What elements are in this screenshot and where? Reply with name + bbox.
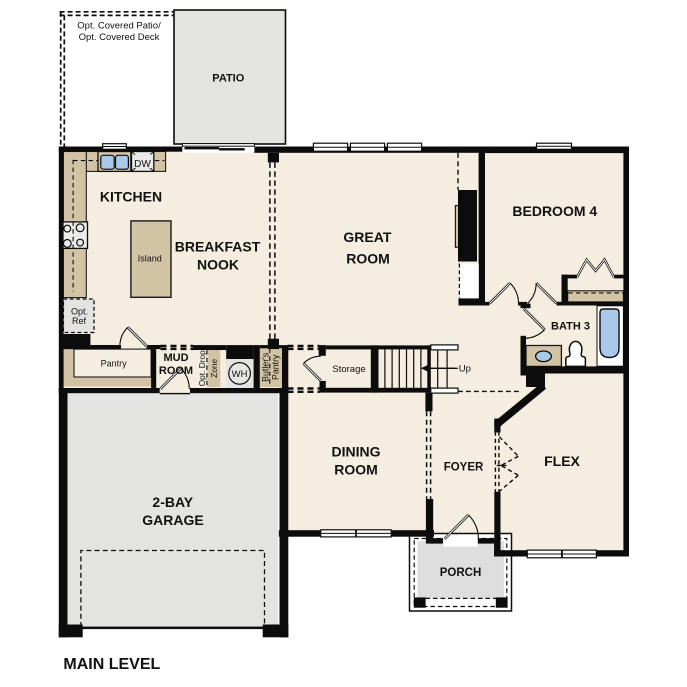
svg-text:Butler's: Butler's [261, 352, 271, 382]
svg-text:2-BAY: 2-BAY [152, 494, 193, 510]
svg-text:Ref: Ref [72, 316, 87, 326]
svg-text:ROOM: ROOM [334, 462, 378, 478]
svg-text:Pantry: Pantry [271, 354, 281, 380]
svg-text:PORCH: PORCH [440, 567, 482, 579]
svg-text:ROOM: ROOM [159, 365, 193, 377]
svg-text:WH: WH [232, 369, 248, 380]
svg-text:KITCHEN: KITCHEN [100, 189, 162, 205]
svg-text:NOOK: NOOK [197, 256, 239, 272]
svg-text:Zone: Zone [209, 358, 219, 377]
svg-text:Opt.: Opt. [71, 306, 88, 316]
svg-text:BATH 3: BATH 3 [551, 320, 590, 332]
svg-text:BREAKFAST: BREAKFAST [175, 238, 261, 254]
svg-text:Storage: Storage [332, 364, 365, 375]
svg-text:PATIO: PATIO [212, 72, 244, 84]
svg-text:DW: DW [134, 159, 151, 170]
svg-text:ROOM: ROOM [346, 251, 390, 267]
svg-text:Pantry: Pantry [101, 358, 128, 368]
svg-text:BEDROOM 4: BEDROOM 4 [512, 203, 597, 219]
svg-text:FLEX: FLEX [544, 453, 580, 469]
svg-text:GREAT: GREAT [343, 229, 391, 245]
svg-text:Up: Up [459, 364, 471, 375]
svg-text:Opt. Covered Patio/: Opt. Covered Patio/ [77, 20, 161, 31]
svg-text:MAIN LEVEL: MAIN LEVEL [63, 656, 160, 673]
svg-text:Island: Island [138, 254, 162, 264]
svg-text:Opt. Drop: Opt. Drop [197, 350, 207, 386]
svg-text:FOYER: FOYER [444, 462, 484, 474]
svg-text:Opt. Covered Deck: Opt. Covered Deck [79, 32, 160, 43]
svg-text:GARAGE: GARAGE [142, 512, 203, 528]
svg-text:DINING: DINING [332, 444, 381, 460]
svg-text:MUD: MUD [163, 352, 188, 364]
